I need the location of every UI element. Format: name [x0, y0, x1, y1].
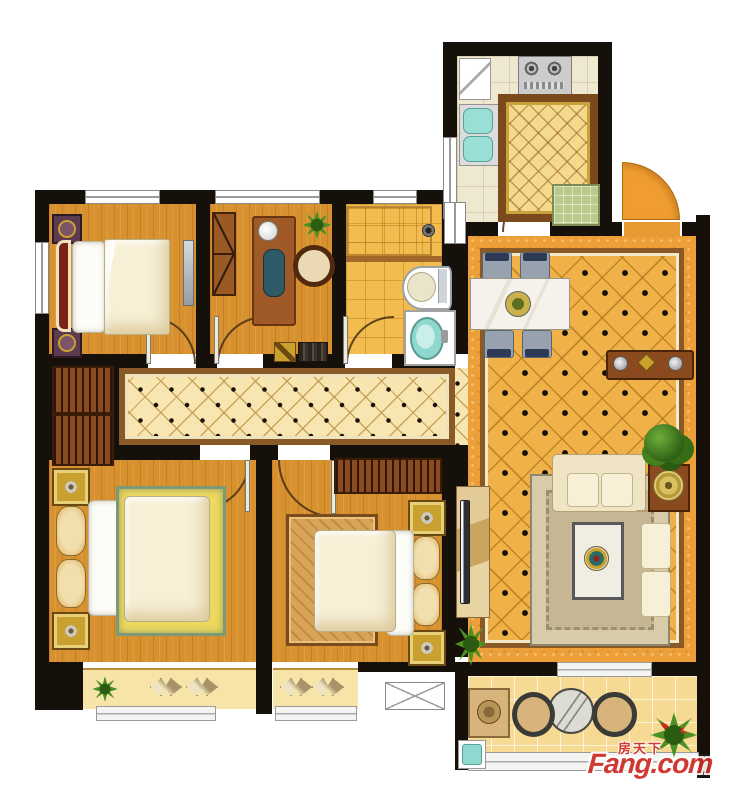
toilet-bowl — [407, 272, 436, 302]
desk-lamp — [258, 221, 278, 241]
sofa-cushion — [641, 571, 671, 617]
watermark-logo-text: Fang.com — [587, 748, 713, 779]
toilet-tank — [438, 269, 447, 303]
wall-kitchen-top — [443, 42, 612, 56]
bathroom-divider — [346, 256, 442, 262]
hallway-floor — [119, 368, 455, 445]
stove-burner-left — [524, 61, 539, 76]
bathroom-door-leaf — [343, 316, 348, 364]
bedroom2-bolsters — [412, 536, 440, 626]
dining-chair-top-left — [482, 252, 512, 280]
bedroom1-headboard — [56, 240, 71, 332]
sofa-cushion — [567, 473, 599, 507]
wall-bay-mid-stub — [256, 662, 272, 714]
study-guest-chair — [293, 245, 335, 287]
basin-faucet — [441, 330, 448, 343]
washbasin — [410, 317, 444, 360]
bedroom1-mirror — [183, 240, 194, 306]
entry-threshold — [622, 222, 682, 236]
washing-machine-door — [477, 700, 501, 724]
wall-top-3 — [318, 190, 373, 204]
ac-platform — [385, 682, 445, 710]
wall-top-2 — [158, 190, 215, 204]
study-bookshelf — [212, 212, 236, 296]
bedroom1-top-window — [85, 190, 160, 204]
entry-doormat — [552, 184, 600, 226]
wall-hall-bottom-2 — [250, 444, 278, 460]
wall-living-right — [696, 215, 710, 680]
wall-left-lower — [35, 445, 49, 662]
tv-screen — [460, 500, 470, 604]
floor-plan: 房天下 Fang.com — [0, 0, 739, 800]
master-bolsters — [56, 506, 86, 608]
decorative-gong — [653, 470, 684, 501]
bathroom-right-window — [444, 202, 466, 244]
study-storage-box — [274, 342, 296, 362]
bedroom1-duvet — [104, 239, 170, 335]
dining-centerpiece — [505, 291, 531, 317]
desk-chair — [263, 249, 285, 297]
coffee-table-medallion — [584, 546, 609, 571]
study-top-window — [215, 190, 320, 204]
entry-door-swing — [622, 162, 680, 220]
wall-left-upper — [35, 190, 49, 242]
console-knob-right — [668, 356, 683, 371]
dining-chair-bottom-right — [522, 330, 552, 358]
balcony-chair-left — [512, 692, 555, 737]
hall-wardrobe-top — [52, 366, 114, 414]
wall-master-bed2 — [256, 460, 272, 662]
bedroom1-nightstand-bottom-ring — [58, 334, 76, 352]
wall-living-bottom-2 — [650, 662, 710, 676]
sofa-horizontal — [552, 454, 646, 512]
wall-kitchen-right — [598, 42, 612, 236]
wall-living-bottom-1 — [455, 662, 557, 676]
bedroom2-nightstand-bottom — [408, 630, 446, 666]
balcony-table — [548, 688, 594, 734]
bedroom1-nightstand-top-ring — [58, 220, 76, 238]
bedroom1-left-window — [35, 242, 49, 314]
bathroom-top-window — [373, 190, 417, 204]
living-plant-tree — [644, 424, 684, 462]
shower-head — [422, 224, 435, 237]
bedroom2-nightstand-top — [408, 500, 446, 536]
sofa-cushion — [601, 473, 633, 507]
study-door-leaf — [214, 316, 219, 364]
stove-vent — [524, 82, 564, 89]
balcony-chair-right — [592, 692, 637, 737]
master-door-leaf — [245, 460, 250, 512]
bedroom2-bay-sill — [275, 706, 357, 721]
master-bay-plant — [92, 676, 118, 702]
master-nightstand-top — [52, 468, 90, 506]
master-bay-sill — [96, 706, 216, 721]
stove-burner-right — [547, 61, 562, 76]
kitchen-sink-basin-bottom — [463, 136, 493, 162]
kitchen-sink-basin-top — [463, 108, 493, 134]
study-books — [298, 342, 328, 362]
wall-left-mid — [35, 312, 49, 445]
shower-area — [346, 206, 432, 256]
wall-bed1-study — [196, 204, 210, 354]
wall-kitchen-left-upper — [443, 56, 457, 137]
balcony-door-sill — [557, 662, 652, 677]
living-plant-corner — [455, 622, 487, 666]
fridge — [459, 58, 491, 100]
bedroom1-pillows — [72, 241, 106, 333]
bedroom2-wardrobe — [334, 458, 442, 494]
balcony-sink-basin — [462, 744, 482, 765]
console-knob-left — [613, 356, 628, 371]
sofa-cushion — [641, 523, 671, 569]
dining-chair-top-right — [520, 252, 550, 280]
master-nightstand-bottom — [52, 612, 90, 650]
hall-wardrobe-bottom — [52, 414, 114, 466]
study-plant — [302, 210, 332, 240]
dining-chair-bottom-left — [484, 330, 514, 358]
wall-corner-bottom-left — [35, 662, 83, 710]
bedroom2-duvet — [314, 530, 396, 632]
watermark-logo: Fang.com — [587, 748, 713, 780]
master-duvet — [124, 496, 210, 622]
